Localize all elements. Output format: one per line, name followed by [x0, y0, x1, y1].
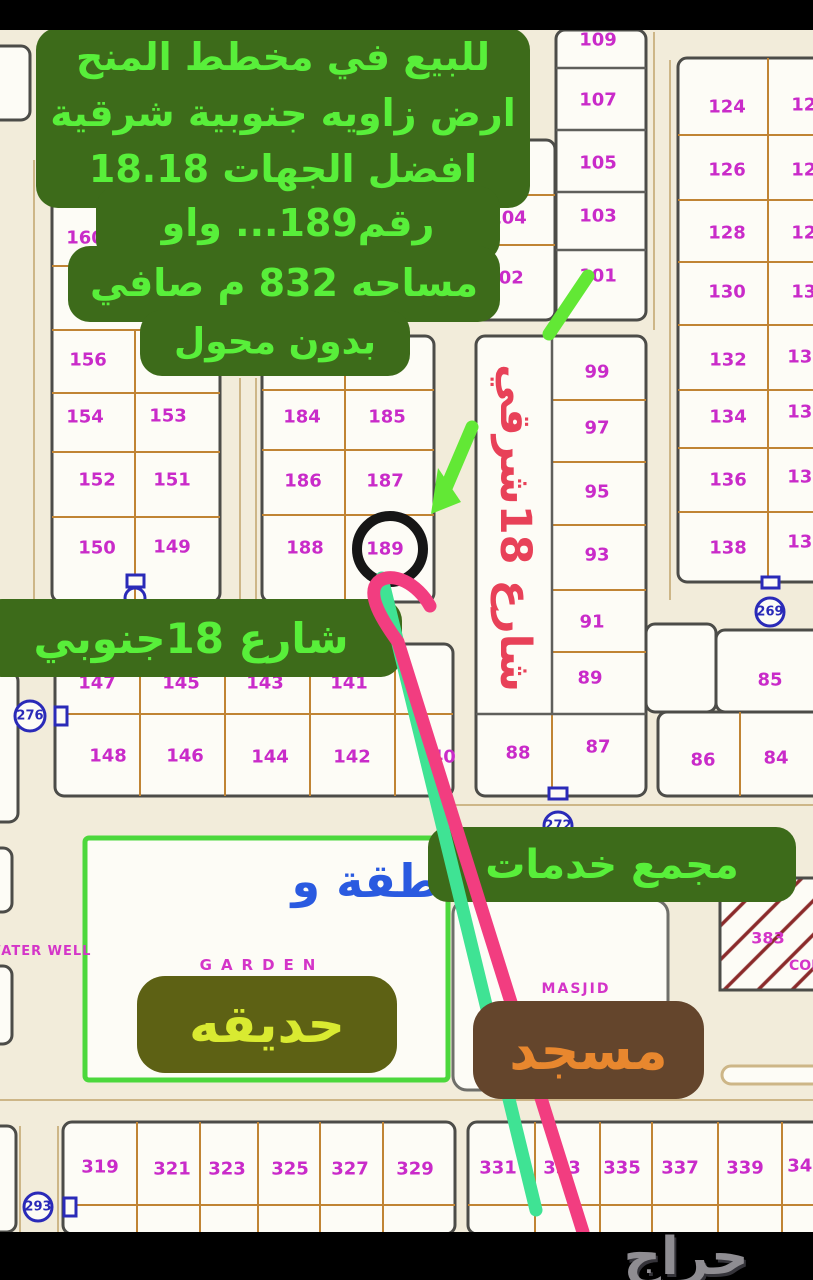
pink-route-line [374, 578, 583, 1232]
mosque-label: مسجد [473, 1001, 704, 1099]
garden-label: حديقه [137, 976, 397, 1073]
haraj-watermark-logo: حراج [623, 1227, 748, 1280]
pointer-arrow-stroke [549, 276, 588, 334]
top-letterbox-bar [0, 0, 813, 30]
pointer-arrow-stroke [446, 427, 472, 488]
map-canvas: 2692762722931601561541531521511501491841… [0, 0, 813, 1280]
